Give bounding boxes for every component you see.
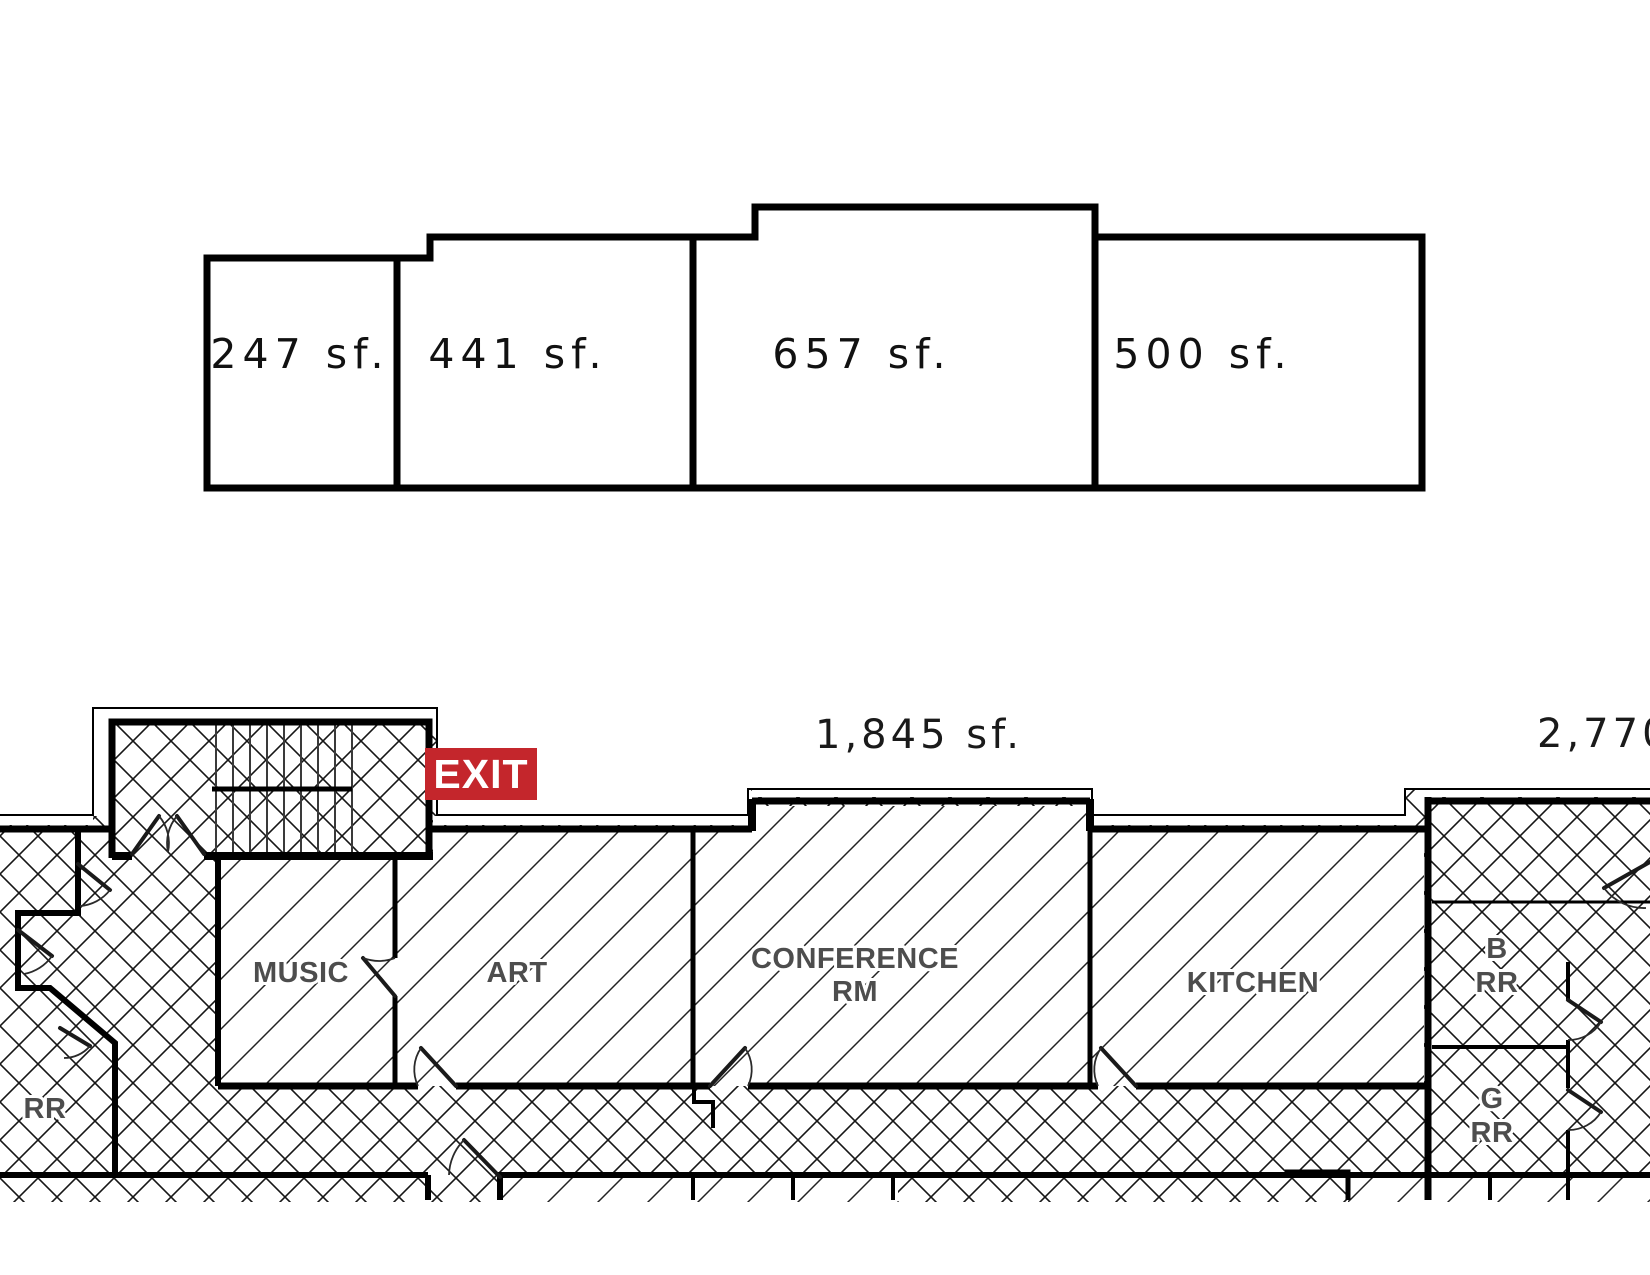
exit-sign: EXIT — [425, 748, 537, 800]
floor-plan: EXIT 1,845 sf. 2,770 MUSIC ART CONFERENC… — [0, 708, 1650, 1202]
suite-4-area-label: 500 sf. — [1113, 330, 1292, 378]
floorplan-page: 247 sf. 441 sf. 657 sf. 500 sf. — [0, 0, 1650, 1275]
music-room-label: MUSIC — [253, 957, 349, 989]
conference-room-label-line1: CONFERENCE — [751, 943, 959, 975]
suite-1-area-label: 247 sf. — [210, 330, 389, 378]
exit-sign-label: EXIT — [433, 751, 528, 797]
b-rr-label-line1: B — [1486, 933, 1507, 965]
g-rr-label-line1: G — [1480, 1083, 1503, 1115]
art-room-label: ART — [486, 957, 547, 989]
b-rr-label-line2: RR — [1476, 967, 1519, 999]
suite-3-area-label: 657 sf. — [772, 330, 951, 378]
floorplan-drawing: 247 sf. 441 sf. 657 sf. 500 sf. — [0, 0, 1650, 1275]
kitchen-room-label: KITCHEN — [1187, 967, 1319, 999]
kitchen-room — [1090, 830, 1424, 1086]
center-suite-area-label: 1,845 sf. — [815, 712, 1023, 758]
g-rr-label-line2: RR — [1471, 1117, 1514, 1149]
suite-schematic: 247 sf. 441 sf. 657 sf. 500 sf. — [207, 207, 1422, 488]
right-suite-area-label: 2,770 — [1537, 711, 1650, 757]
conference-room-label-line2: RM — [832, 976, 878, 1008]
left-rr-label: RR — [24, 1093, 67, 1125]
suite-2-area-label: 441 sf. — [428, 330, 607, 378]
